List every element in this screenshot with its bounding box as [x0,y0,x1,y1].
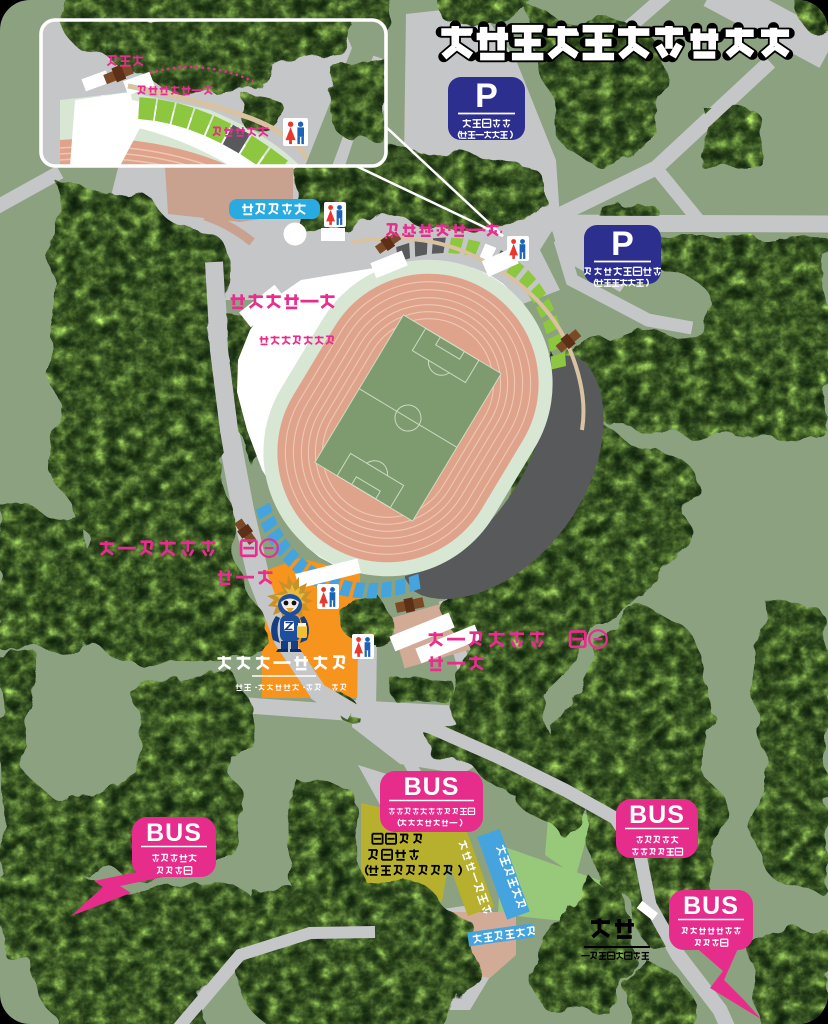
svg-text:BUS: BUS [683,892,739,920]
svg-text:BUS: BUS [629,801,685,829]
svg-text:BUS: BUS [146,819,202,847]
svg-text:P: P [475,77,498,115]
svg-text:BUS: BUS [404,773,460,801]
svg-text:P: P [611,225,634,263]
